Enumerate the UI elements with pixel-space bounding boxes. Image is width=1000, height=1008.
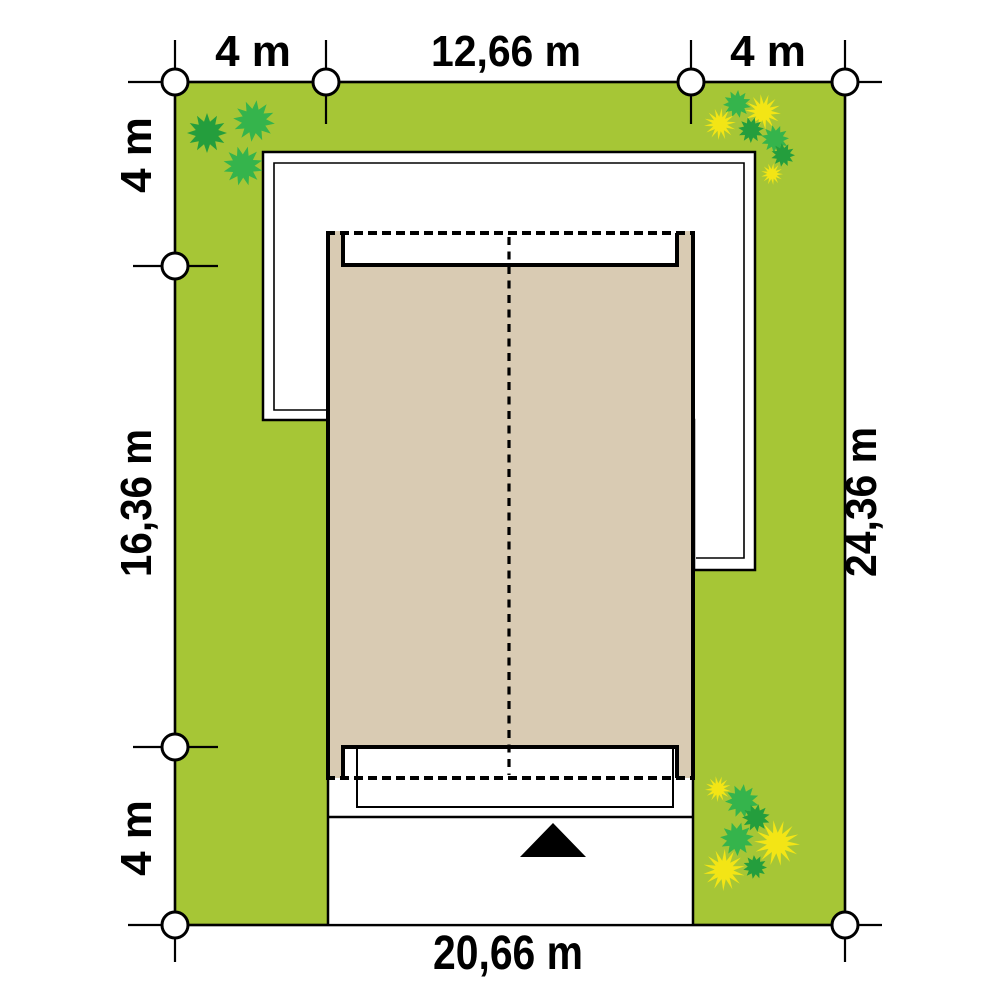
dimension-node: [832, 912, 858, 938]
dimension-label-left-top-setback: 4 m: [112, 117, 161, 193]
site-plan-diagram: 4 m 12,66 m 4 m 4 m 16,36 m 4 m 24,36 m …: [0, 0, 1000, 1008]
dimension-label-house-width: 12,66 m: [431, 27, 581, 76]
dimension-node: [313, 69, 339, 95]
dimension-node: [162, 734, 188, 760]
dimension-node: [162, 69, 188, 95]
dimension-label-top-left-setback: 4 m: [215, 27, 291, 76]
dimension-label-left-bottom-setback: 4 m: [112, 800, 161, 876]
dimension-label-plot-depth: 24,36 m: [837, 427, 886, 577]
dimension-label-house-depth: 16,36 m: [112, 429, 161, 577]
dimension-label-top-right-setback: 4 m: [730, 27, 806, 76]
dimension-node: [162, 912, 188, 938]
dimension-label-plot-width: 20,66 m: [433, 927, 583, 980]
dimension-node: [678, 69, 704, 95]
dimension-node: [162, 253, 188, 279]
porch-top-inset: [343, 231, 677, 265]
dimension-node: [832, 69, 858, 95]
